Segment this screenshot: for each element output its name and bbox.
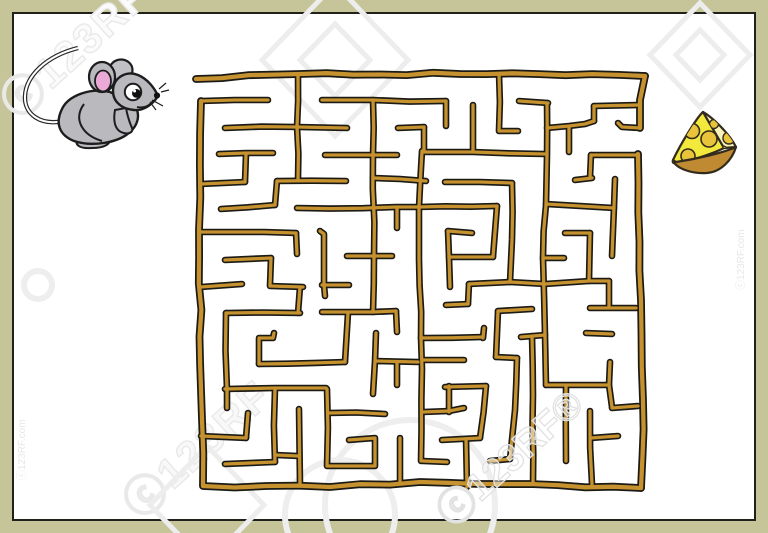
svg-text:ⓒ123RF.com: ⓒ123RF.com (16, 419, 28, 480)
svg-text:ⓒ123RF.com: ⓒ123RF.com (735, 229, 747, 290)
